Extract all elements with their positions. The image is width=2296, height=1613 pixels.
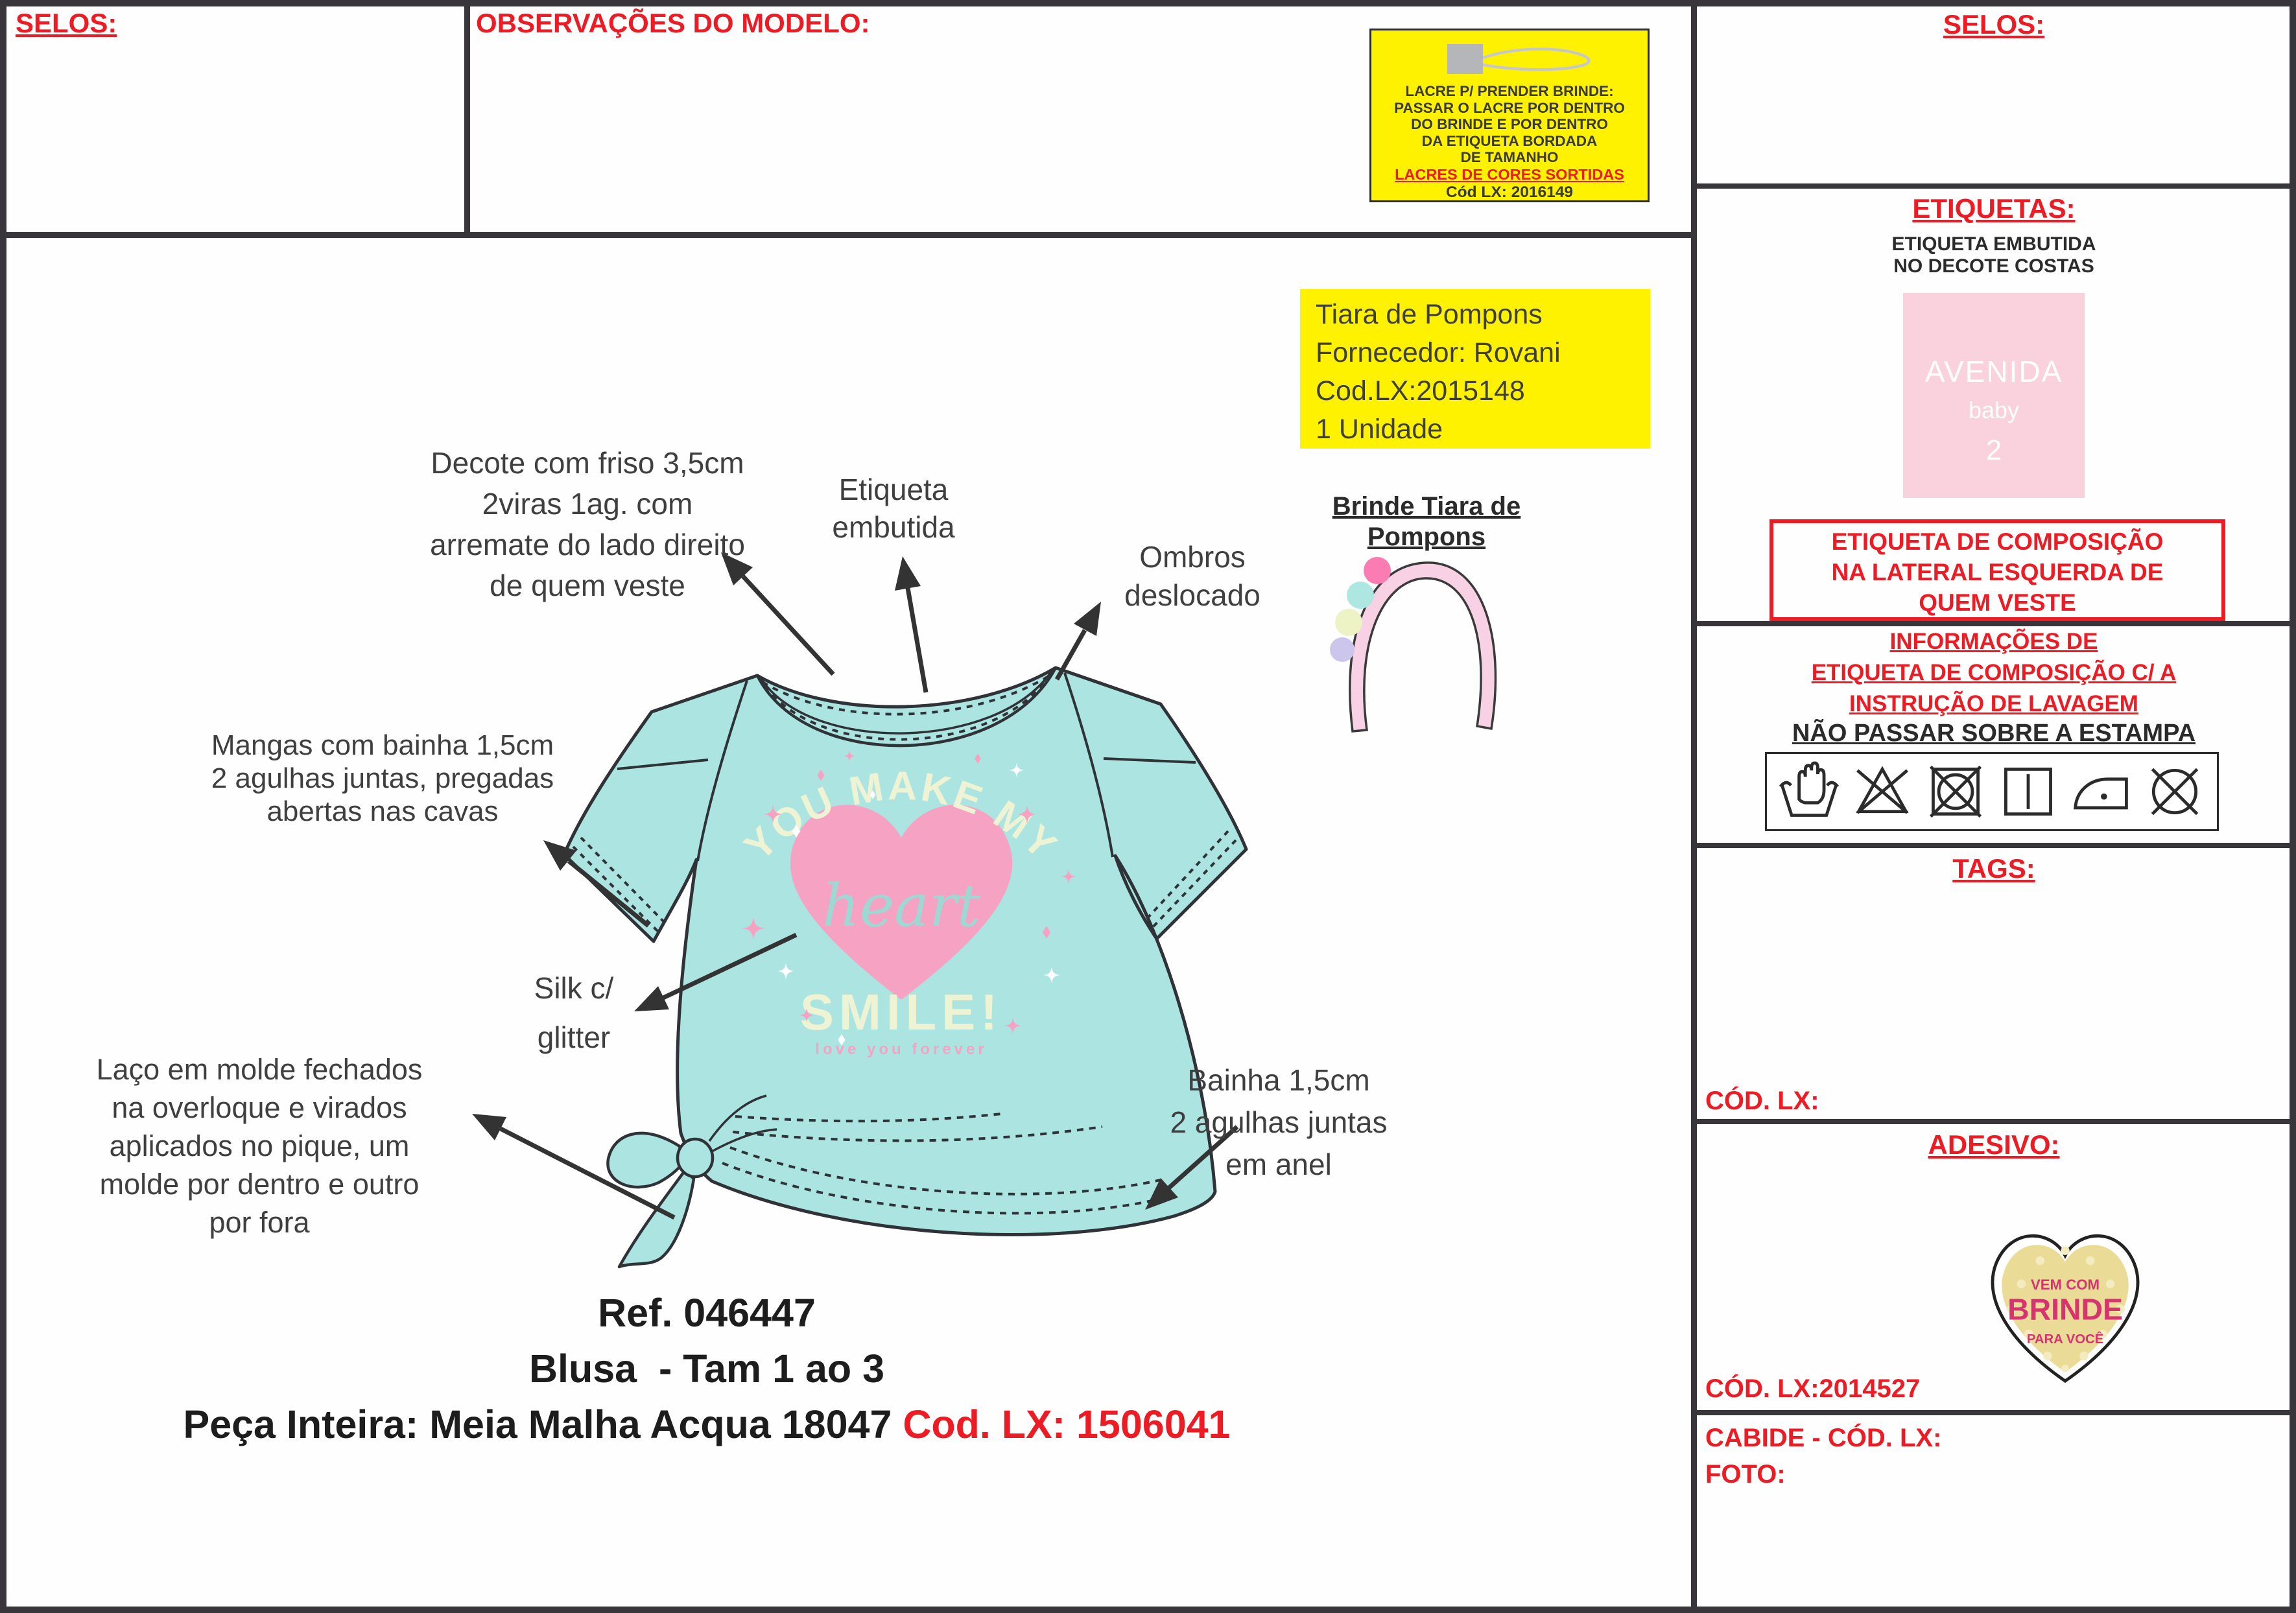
- annotation-etiqueta: Etiqueta embutida: [796, 471, 991, 546]
- selos-header-left: SELOS:: [16, 8, 117, 39]
- selos-header-right: SELOS:: [1698, 9, 2290, 40]
- lacre-note-code: Cód LX: 2016149: [1371, 183, 1648, 202]
- divider-top: [464, 6, 470, 233]
- hand-wash-icon: [1778, 760, 1840, 823]
- tags-header: TAGS:: [1698, 853, 2290, 884]
- do-not-tumble-dry-icon: [1924, 760, 1987, 823]
- divider-selos: [1697, 183, 2290, 189]
- etiquetas-header: ETIQUETAS:: [1698, 193, 2290, 224]
- lacre-note-text: LACRE P/ PRENDER BRINDE: PASSAR O LACRE …: [1371, 83, 1648, 166]
- care-note: NÃO PASSAR SOBRE A ESTAMPA: [1698, 720, 2290, 748]
- annotation-ombros: Ombros deslocado: [1095, 538, 1290, 615]
- neck-size-label: AVENIDA baby 2: [1903, 293, 2085, 498]
- etiqueta-note: ETIQUETA EMBUTIDA NO DECOTE COSTAS: [1698, 233, 2290, 277]
- pompon-pink: [1364, 557, 1391, 584]
- print-smile-text: SMILE!: [800, 983, 1002, 1041]
- do-not-bleach-icon: [1851, 760, 1913, 823]
- brinde-sticker: VEM COM BRINDE PARA VOCÊ: [1971, 1224, 2159, 1394]
- brinde-title: Brinde Tiara de Pompons: [1297, 491, 1556, 552]
- fabric-text: Peça Inteira: Meia Malha Acqua 18047: [183, 1402, 903, 1446]
- divider-care: [1697, 843, 2290, 848]
- divider-tags: [1697, 1119, 2290, 1124]
- lacre-note-box: LACRE P/ PRENDER BRINDE: PASSAR O LACRE …: [1369, 29, 1650, 202]
- garment-size: Blusa - Tam 1 ao 3: [0, 1341, 1414, 1396]
- iron-icon: [2070, 760, 2133, 823]
- annotation-decote: Decote com friso 3,5cm 2viras 1ag. com a…: [361, 443, 814, 606]
- neck-label-size: 2: [1903, 434, 2085, 467]
- annotation-laco: Laço em molde fechados na overloque e vi…: [32, 1050, 486, 1242]
- foto-label: FOTO:: [1705, 1460, 1786, 1489]
- arrow-ombros: [1057, 602, 1101, 679]
- lacre-loop-icon: [1412, 38, 1607, 80]
- neck-label-brand: AVENIDA: [1903, 354, 2085, 389]
- annotation-silk: Silk c/ glitter: [493, 963, 655, 1062]
- brinde-supplier-box: Tiara de Pompons Fornecedor: Rovani Cod.…: [1300, 289, 1650, 449]
- tags-cod-lx: CÓD. LX:: [1705, 1087, 1819, 1116]
- divider-etiquetas: [1697, 621, 2290, 626]
- arrow-etiqueta: [895, 556, 926, 692]
- sticker-line2: BRINDE: [2007, 1292, 2123, 1326]
- adesivo-header: ADESIVO:: [1698, 1129, 2290, 1160]
- sticker-line3: PARA VOCÊ: [2027, 1331, 2103, 1347]
- adesivo-cod-lx: CÓD. LX:2014527: [1705, 1374, 1920, 1404]
- pompon-cream: [1335, 609, 1362, 636]
- lacre-note-highlight: LACRES DE CORES SORTIDAS: [1371, 166, 1648, 183]
- tiara-illustration: [1330, 557, 1495, 731]
- divider-adesivo: [1697, 1410, 2290, 1415]
- annotation-bainha: Bainha 1,5cm 2 agulhas juntas em anel: [1117, 1059, 1441, 1186]
- care-title: INFORMAÇÕES DE ETIQUETA DE COMPOSIÇÃO C/…: [1698, 626, 2290, 720]
- care-icons-box: [1765, 752, 2219, 831]
- pompon-lavender: [1330, 637, 1355, 662]
- fabric-line: Peça Inteira: Meia Malha Acqua 18047 Cod…: [0, 1396, 1414, 1452]
- ref-number: Ref. 046447: [0, 1285, 1414, 1341]
- composition-note-box: ETIQUETA DE COMPOSIÇÃO NA LATERAL ESQUER…: [1769, 519, 2225, 621]
- reference-block: Ref. 046447 Blusa - Tam 1 ao 3 Peça Inte…: [0, 1285, 1414, 1452]
- spec-sheet: SELOS: OBSERVAÇÕES DO MODELO: LACRE P/ P…: [0, 0, 2296, 1613]
- cabide-cod-lx: CABIDE - CÓD. LX:: [1705, 1424, 1941, 1453]
- fabric-cod-lx: Cod. LX: 1506041: [903, 1402, 1230, 1446]
- annotation-mangas: Mangas com bainha 1,5cm 2 agulhas juntas…: [156, 729, 610, 828]
- sticker-line1: VEM COM: [2031, 1277, 2100, 1293]
- line-dry-icon: [1997, 760, 2059, 823]
- do-not-dry-clean-icon: [2144, 760, 2206, 823]
- neck-label-sub: baby: [1903, 397, 2085, 424]
- pompon-cyan: [1347, 582, 1374, 609]
- observacoes-header: OBSERVAÇÕES DO MODELO:: [476, 8, 870, 39]
- print-heart-word: heart: [822, 872, 981, 940]
